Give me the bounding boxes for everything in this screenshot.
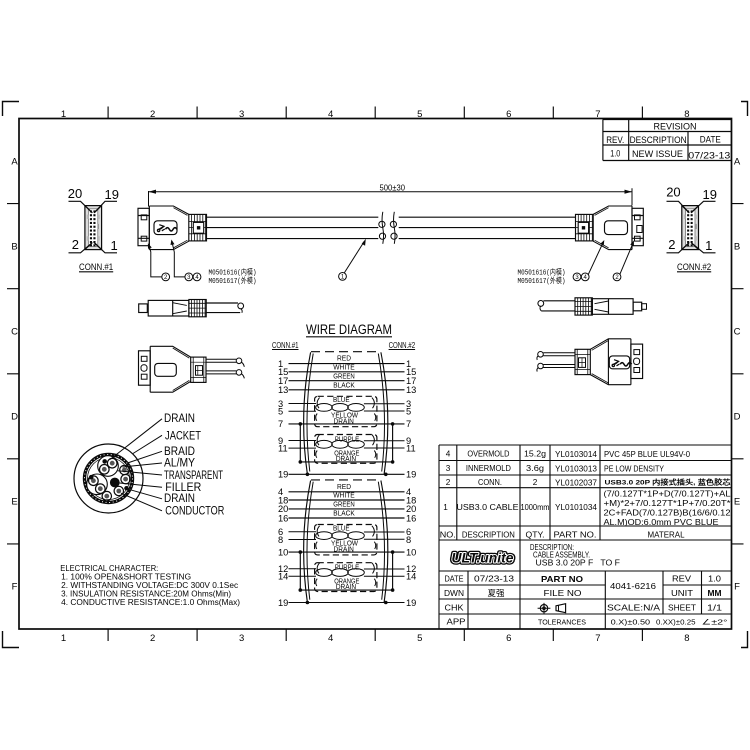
svg-text:PE LOW DENSITY: PE LOW DENSITY [604, 465, 664, 474]
svg-text:GREEN: GREEN [333, 371, 355, 380]
svg-text:REVISION: REVISION [654, 121, 697, 131]
svg-text:C: C [734, 327, 741, 338]
svg-text:NEW ISSUE: NEW ISSUE [632, 149, 683, 159]
svg-text:WHITE: WHITE [333, 363, 355, 372]
svg-text:4. CONDUCTIVE RESISTANCE:1.0 O: 4. CONDUCTIVE RESISTANCE:1.0 Ohms(Max) [61, 598, 240, 607]
svg-text:BLACK: BLACK [333, 381, 355, 390]
svg-text:0.X)±0.50: 0.X)±0.50 [611, 618, 651, 627]
svg-text:2: 2 [446, 478, 451, 487]
svg-text:4: 4 [328, 633, 333, 644]
svg-text:16: 16 [406, 513, 416, 523]
svg-text:CHK: CHK [445, 603, 465, 612]
svg-text:2: 2 [150, 109, 155, 120]
svg-text:PART NO: PART NO [541, 575, 584, 584]
svg-text:D: D [734, 412, 741, 423]
svg-text:CONN.: CONN. [478, 478, 502, 487]
svg-text:WIRE DIAGRAM: WIRE DIAGRAM [306, 322, 392, 337]
svg-text:BRAID: BRAID [164, 446, 195, 458]
svg-text:3: 3 [239, 109, 244, 120]
svg-text:5: 5 [417, 109, 422, 120]
svg-text:8: 8 [684, 633, 689, 644]
svg-text:19: 19 [406, 470, 416, 480]
svg-text:M0501616(内模): M0501616(内模) [209, 268, 257, 278]
svg-text:B: B [11, 242, 17, 253]
svg-text:E: E [734, 497, 740, 508]
svg-text:CONN.#2: CONN.#2 [389, 341, 416, 350]
svg-text:500±30: 500±30 [380, 183, 406, 193]
svg-text:5: 5 [278, 407, 283, 417]
svg-text:TRANSPARENT: TRANSPARENT [164, 470, 223, 482]
svg-text:1.0: 1.0 [610, 148, 620, 158]
svg-text:AL/MY: AL/MY [164, 458, 195, 470]
svg-text:MATERAL: MATERAL [648, 530, 685, 539]
svg-text:1: 1 [111, 238, 118, 253]
svg-text:5: 5 [406, 407, 411, 417]
svg-text:BLUE: BLUE [333, 395, 350, 404]
svg-text:20: 20 [666, 185, 680, 200]
svg-text:7: 7 [595, 633, 600, 644]
svg-text:13: 13 [406, 385, 416, 395]
svg-text:C: C [11, 327, 18, 338]
svg-text:UNIT: UNIT [671, 589, 693, 598]
svg-text:19: 19 [278, 598, 288, 608]
svg-text:DESCRIPTION: DESCRIPTION [462, 530, 515, 539]
svg-text:19: 19 [406, 598, 416, 608]
svg-text:YL0102037: YL0102037 [555, 478, 597, 487]
svg-text:2: 2 [668, 237, 675, 252]
svg-text:RED: RED [337, 354, 351, 363]
svg-text:DRAIN: DRAIN [164, 493, 195, 505]
svg-text:PART NO.: PART NO. [554, 530, 597, 539]
svg-text:2C+FAD(7/0.127B)B(16/6/0.12: 2C+FAD(7/0.127B)B(16/6/0.12 [604, 509, 731, 518]
svg-text:DATE: DATE [445, 575, 464, 584]
svg-text:PVC 45P BLUE UL94V-0: PVC 45P BLUE UL94V-0 [604, 450, 690, 459]
svg-text:15.2g: 15.2g [524, 450, 546, 459]
svg-text:USB3.0 CABLE: USB3.0 CABLE [457, 503, 520, 512]
svg-text:CONN.#1: CONN.#1 [272, 341, 299, 350]
svg-text:D: D [11, 412, 18, 423]
svg-text:7: 7 [278, 419, 283, 429]
svg-text:NO.: NO. [440, 530, 456, 539]
svg-text:B: B [734, 242, 740, 253]
svg-text:4041-6216: 4041-6216 [610, 582, 657, 591]
svg-text:QTY.: QTY. [526, 530, 545, 539]
svg-text:19: 19 [278, 470, 288, 480]
svg-text:SCALE:N/A: SCALE:N/A [607, 603, 661, 612]
svg-text:8: 8 [278, 535, 283, 545]
svg-text:4: 4 [328, 109, 333, 120]
svg-text:JACKET: JACKET [165, 430, 201, 442]
svg-text:13: 13 [278, 385, 288, 395]
svg-text:20: 20 [68, 186, 82, 201]
svg-text:3: 3 [239, 633, 244, 644]
svg-text:FILE NO: FILE NO [544, 589, 582, 598]
svg-text:MM: MM [708, 589, 722, 598]
svg-text:0.XX)±0.25: 0.XX)±0.25 [656, 618, 696, 627]
svg-text:10: 10 [278, 547, 288, 557]
svg-text:07/23-13: 07/23-13 [688, 150, 730, 160]
svg-text:DATE: DATE [700, 135, 721, 145]
svg-text:8: 8 [684, 109, 689, 120]
svg-text:夏强: 夏强 [487, 588, 505, 598]
svg-text:1: 1 [443, 503, 448, 512]
svg-text:REV.: REV. [606, 135, 624, 145]
svg-text:1.0: 1.0 [708, 575, 721, 584]
svg-text:∠±2°: ∠±2° [702, 618, 728, 627]
svg-text:1: 1 [61, 633, 66, 644]
svg-text:USB 3.0 20P F TO F: USB 3.0 20P F TO F [536, 558, 621, 567]
svg-text:14: 14 [406, 572, 416, 582]
svg-text:6: 6 [506, 109, 511, 120]
svg-text:2: 2 [72, 237, 79, 252]
svg-text:5: 5 [417, 633, 422, 644]
svg-text:19: 19 [105, 187, 119, 202]
svg-text:INNERMOLD: INNERMOLD [466, 464, 511, 473]
svg-text:DESCRIPTION: DESCRIPTION [630, 135, 687, 145]
svg-text:4: 4 [446, 450, 451, 459]
svg-text:2: 2 [150, 633, 155, 644]
svg-text:A: A [734, 157, 741, 168]
svg-text:YL0101034: YL0101034 [555, 503, 597, 512]
svg-text:(7/0.127T*1P+D(7/0.127T)+AL: (7/0.127T*1P+D(7/0.127T)+AL [604, 490, 732, 499]
svg-text:14: 14 [278, 572, 288, 582]
svg-text:ULT.unite: ULT.unite [452, 551, 514, 566]
svg-text:USB3.0 20P 内接式插头, 蓝色胶芯: USB3.0 20P 内接式插头, 蓝色胶芯 [605, 477, 732, 486]
svg-text:1000mm: 1000mm [521, 503, 550, 512]
svg-text:1: 1 [705, 238, 712, 253]
svg-text:OVERMOLD: OVERMOLD [467, 450, 509, 459]
svg-text:E: E [11, 497, 17, 508]
svg-text:F: F [12, 582, 18, 593]
svg-text:AL.M)OD:6.0mm PVC BLUE: AL.M)OD:6.0mm PVC BLUE [604, 518, 719, 527]
svg-text:+M)*2+7/0.127T*1P+7/0.20T*: +M)*2+7/0.127T*1P+7/0.20T* [604, 499, 731, 508]
svg-text:REV: REV [672, 575, 692, 584]
svg-text:2: 2 [533, 478, 538, 487]
svg-text:APP: APP [447, 618, 467, 627]
svg-text:PURPLE: PURPLE [335, 434, 360, 443]
svg-text:19: 19 [703, 187, 717, 202]
svg-text:ELECTRICAL CHARACTER:: ELECTRICAL CHARACTER: [60, 564, 158, 573]
svg-text:SHEET: SHEET [668, 603, 696, 612]
svg-text:YL0103014: YL0103014 [555, 450, 597, 459]
svg-text:TOLERANCES: TOLERANCES [538, 619, 586, 626]
svg-text:DWN: DWN [444, 589, 464, 598]
svg-text:16: 16 [278, 513, 288, 523]
svg-text:F: F [734, 582, 740, 593]
svg-text:7: 7 [595, 109, 600, 120]
svg-text:M0501617(外模): M0501617(外模) [518, 276, 566, 286]
svg-text:DRAIN: DRAIN [164, 413, 195, 425]
svg-text:10: 10 [406, 547, 416, 557]
svg-text:CONDUCTOR: CONDUCTOR [165, 506, 224, 518]
svg-text:3: 3 [446, 464, 451, 473]
svg-text:M0501617(外模): M0501617(外模) [209, 276, 257, 286]
svg-text:11: 11 [406, 443, 416, 453]
svg-text:3.6g: 3.6g [526, 464, 545, 473]
svg-text:6: 6 [506, 633, 511, 644]
svg-text:11: 11 [278, 443, 288, 453]
svg-text:A: A [11, 157, 18, 168]
svg-text:7: 7 [406, 419, 411, 429]
svg-text:8: 8 [406, 535, 411, 545]
svg-text:1: 1 [61, 109, 66, 120]
svg-text:YL0103013: YL0103013 [555, 465, 597, 474]
svg-text:07/23-13: 07/23-13 [474, 575, 515, 584]
svg-text:M0501616(内模): M0501616(内模) [518, 268, 566, 278]
svg-text:1/1: 1/1 [707, 603, 723, 612]
